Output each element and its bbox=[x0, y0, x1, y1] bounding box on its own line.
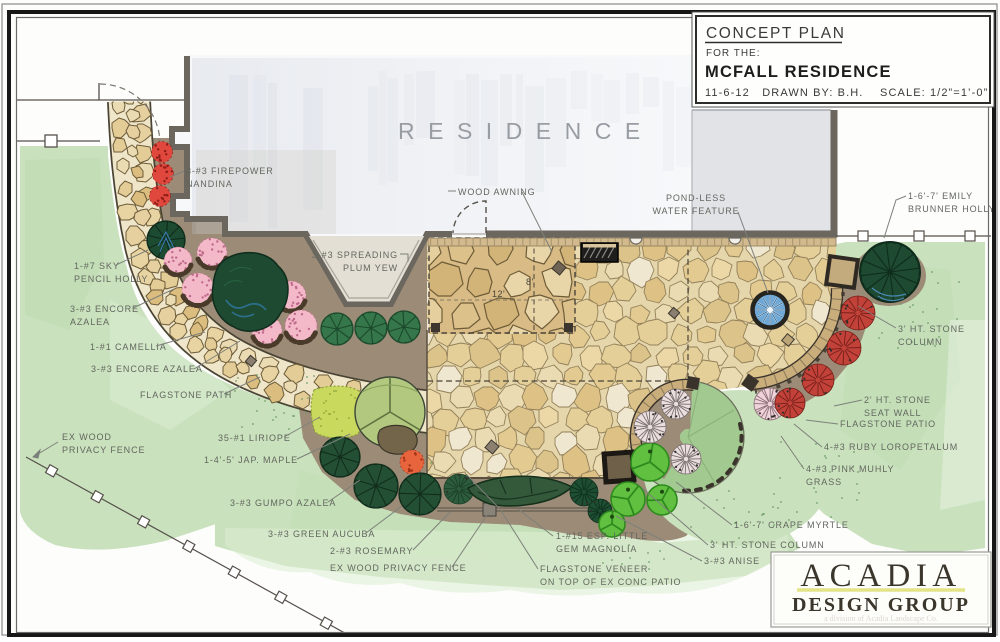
svg-text:ON TOP OF EX CONC PATIO: ON TOP OF EX CONC PATIO bbox=[540, 577, 681, 587]
svg-text:MCFALL RESIDENCE: MCFALL RESIDENCE bbox=[705, 63, 892, 81]
svg-text:4-#3 RUBY LOROPETALUM: 4-#3 RUBY LOROPETALUM bbox=[824, 442, 958, 452]
svg-text:11-6-12 DRAWN BY: B.H. SC: 11-6-12 DRAWN BY: B.H. SCALE: 1/2”=1’-0” bbox=[705, 87, 988, 99]
svg-text:3-#3 ENCORE AZALEA: 3-#3 ENCORE AZALEA bbox=[91, 364, 203, 374]
svg-text:EX WOOD: EX WOOD bbox=[62, 432, 112, 442]
svg-text:POND-LESS: POND-LESS bbox=[666, 193, 726, 203]
svg-text:2' HT. STONE: 2' HT. STONE bbox=[864, 395, 931, 405]
svg-text:1-#15 ESP. LITTLE: 1-#15 ESP. LITTLE bbox=[556, 531, 648, 541]
svg-text:3-#3 FIREPOWER: 3-#3 FIREPOWER bbox=[186, 166, 274, 176]
svg-text:1-#1 CAMELLIA: 1-#1 CAMELLIA bbox=[90, 342, 167, 352]
svg-text:COLUMN: COLUMN bbox=[898, 337, 942, 347]
svg-text:1-6'-7' CRAPE MYRTLE: 1-6'-7' CRAPE MYRTLE bbox=[734, 520, 849, 530]
svg-text:3' HT. STONE COLUMN: 3' HT. STONE COLUMN bbox=[710, 540, 825, 550]
svg-text:FLAGSTONE PATH: FLAGSTONE PATH bbox=[140, 390, 232, 400]
svg-text:BRUNNER HOLLY: BRUNNER HOLLY bbox=[908, 204, 996, 214]
svg-text:3' HT. STONE: 3' HT. STONE bbox=[898, 324, 965, 334]
svg-text:1-4'-5' JAP. MAPLE: 1-4'-5' JAP. MAPLE bbox=[204, 455, 298, 465]
svg-text:PLUM YEW: PLUM YEW bbox=[343, 263, 398, 273]
svg-text:PRIVACY FENCE: PRIVACY FENCE bbox=[62, 445, 145, 455]
svg-text:35-#1 LIRIOPE: 35-#1 LIRIOPE bbox=[218, 433, 291, 443]
svg-text:a division of Acadia Landscape: a division of Acadia Landscape Co. bbox=[824, 614, 938, 623]
svg-text:WATER FEATURE: WATER FEATURE bbox=[652, 206, 739, 216]
svg-text:FLAGSTONE PATIO: FLAGSTONE PATIO bbox=[840, 419, 936, 429]
svg-text:3-#3 SPREADING: 3-#3 SPREADING bbox=[312, 250, 398, 260]
svg-text:1-6'-7' EMILY: 1-6'-7' EMILY bbox=[908, 191, 973, 201]
svg-text:NANDINA: NANDINA bbox=[186, 179, 233, 189]
svg-text:CONCEPT PLAN: CONCEPT PLAN bbox=[706, 25, 846, 42]
svg-text:AZALEA: AZALEA bbox=[70, 317, 110, 327]
svg-text:1-#7 SKY: 1-#7 SKY bbox=[74, 261, 120, 271]
svg-text:3-#3 ENCORE: 3-#3 ENCORE bbox=[70, 304, 139, 314]
svg-text:RESIDENCE: RESIDENCE bbox=[398, 118, 654, 144]
svg-text:GEM MAGNOLIA: GEM MAGNOLIA bbox=[556, 544, 637, 554]
svg-text:4-#3 PINK MUHLY: 4-#3 PINK MUHLY bbox=[806, 464, 894, 474]
svg-text:3-#3 ANISE: 3-#3 ANISE bbox=[704, 556, 760, 566]
svg-text:FOR THE:: FOR THE: bbox=[706, 48, 760, 59]
svg-text:DESIGN GROUP: DESIGN GROUP bbox=[792, 594, 970, 616]
svg-text:12': 12' bbox=[492, 289, 505, 299]
svg-text:2-#3 ROSEMARY: 2-#3 ROSEMARY bbox=[330, 546, 414, 556]
svg-text:PENCIL HOLLY: PENCIL HOLLY bbox=[74, 274, 148, 284]
svg-text:3-#3 GREEN AUCUBA: 3-#3 GREEN AUCUBA bbox=[268, 529, 375, 539]
svg-text:GRASS: GRASS bbox=[806, 477, 842, 487]
svg-text:SEAT WALL: SEAT WALL bbox=[864, 408, 921, 418]
svg-text:3-#3 GUMPO AZALEA: 3-#3 GUMPO AZALEA bbox=[230, 498, 336, 508]
svg-text:EX WOOD PRIVACY FENCE: EX WOOD PRIVACY FENCE bbox=[330, 563, 467, 573]
svg-text:8': 8' bbox=[526, 277, 534, 287]
svg-text:FLAGSTONE VENEER: FLAGSTONE VENEER bbox=[540, 564, 648, 574]
